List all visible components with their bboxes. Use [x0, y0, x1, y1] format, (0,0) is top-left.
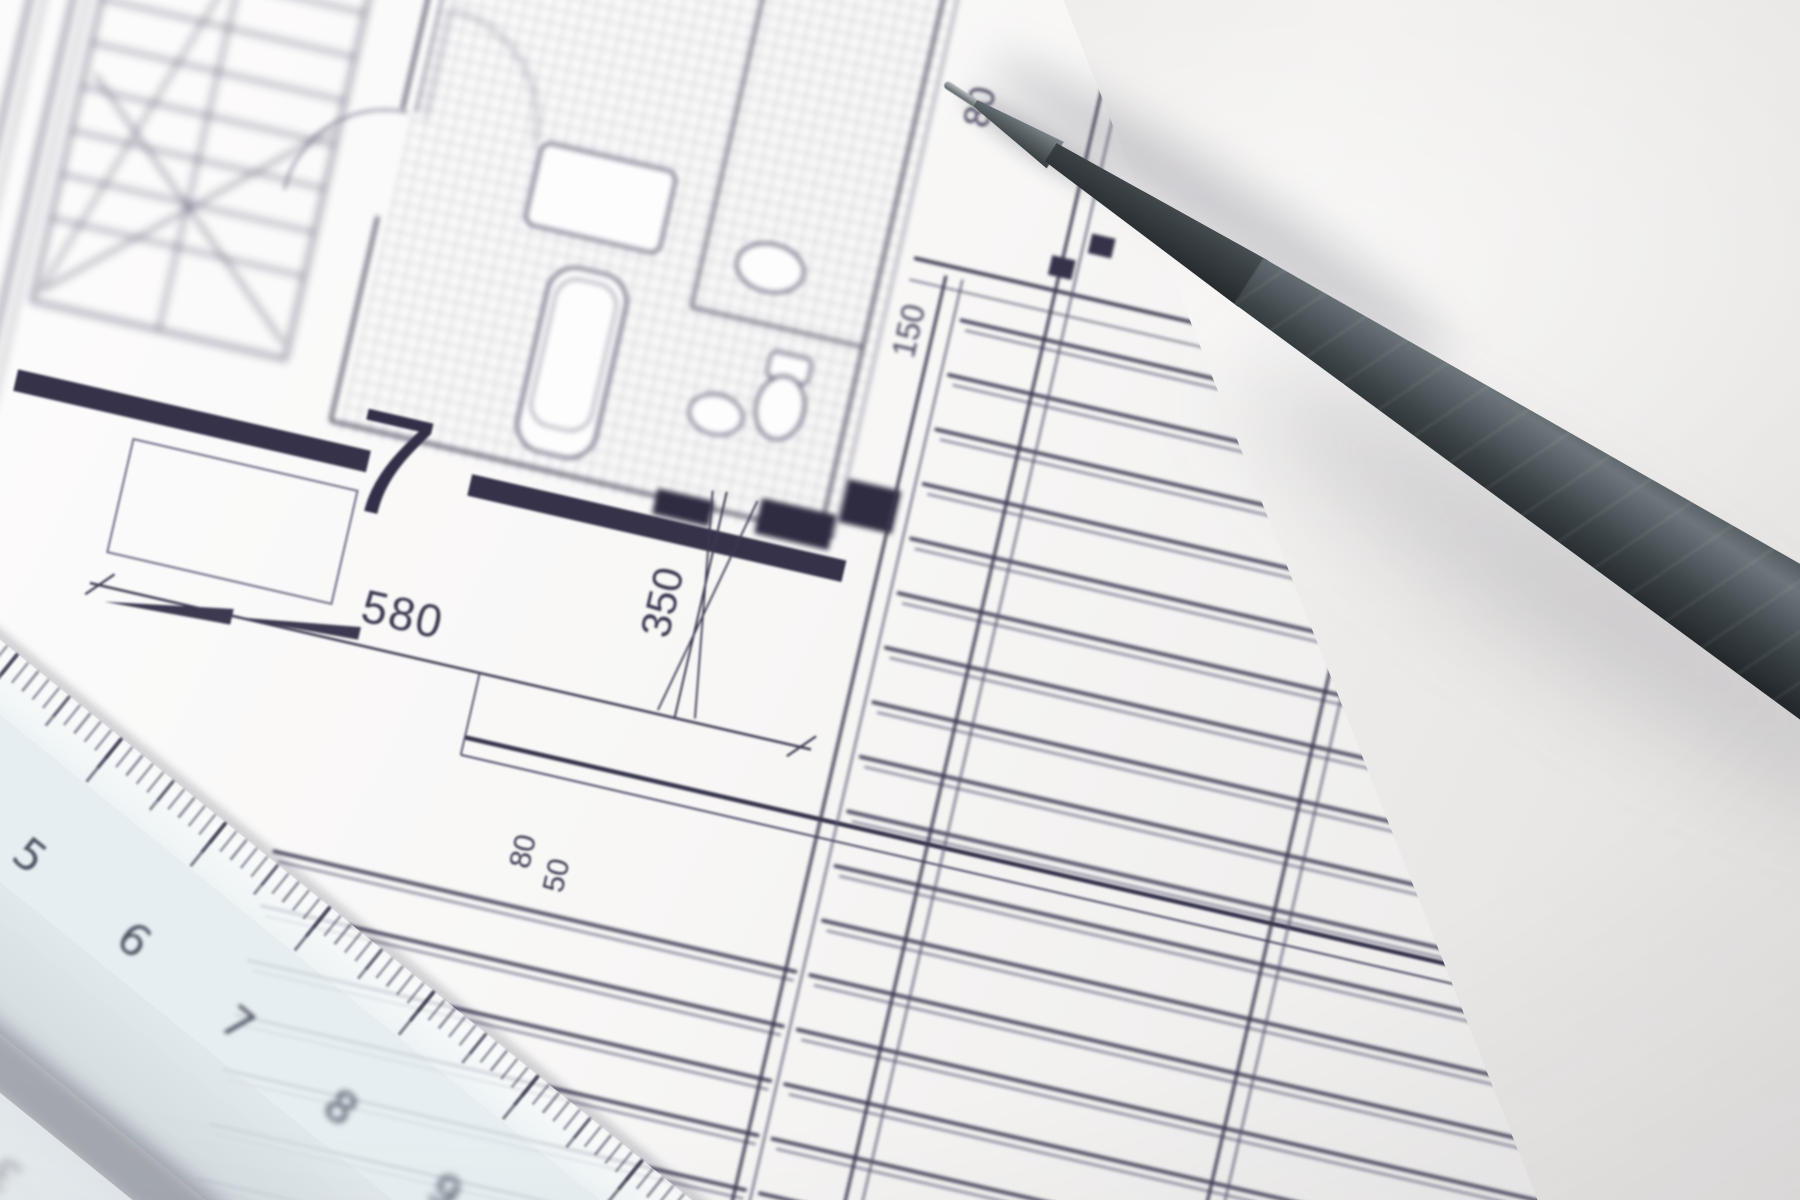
wall-segment: [13, 369, 371, 472]
door-arc-symbol: [284, 89, 408, 213]
bathroom-tiles: [338, 0, 984, 544]
dimension-label-150: 150: [885, 301, 932, 361]
ruler-number-8: 8: [313, 1079, 367, 1136]
dimension-label-80: 80: [503, 831, 543, 871]
dimension-label-350: 350: [631, 563, 693, 642]
dimension-label-50: 50: [537, 856, 577, 896]
ruler-number-7: 7: [210, 995, 264, 1052]
furniture-outline: [107, 439, 357, 604]
dimension-arrow: [104, 580, 234, 630]
ruler-number-6: 6: [107, 912, 161, 969]
ruler-reverse-number: 3: [0, 1147, 31, 1200]
dimension-arrow: [232, 598, 361, 645]
dimension-label-580: 580: [357, 580, 449, 649]
ruler-number-9: 9: [418, 1163, 472, 1200]
ruler-number-5: 5: [3, 827, 57, 884]
photo-scene: 7 580 350 80 50: [0, 0, 1800, 1200]
